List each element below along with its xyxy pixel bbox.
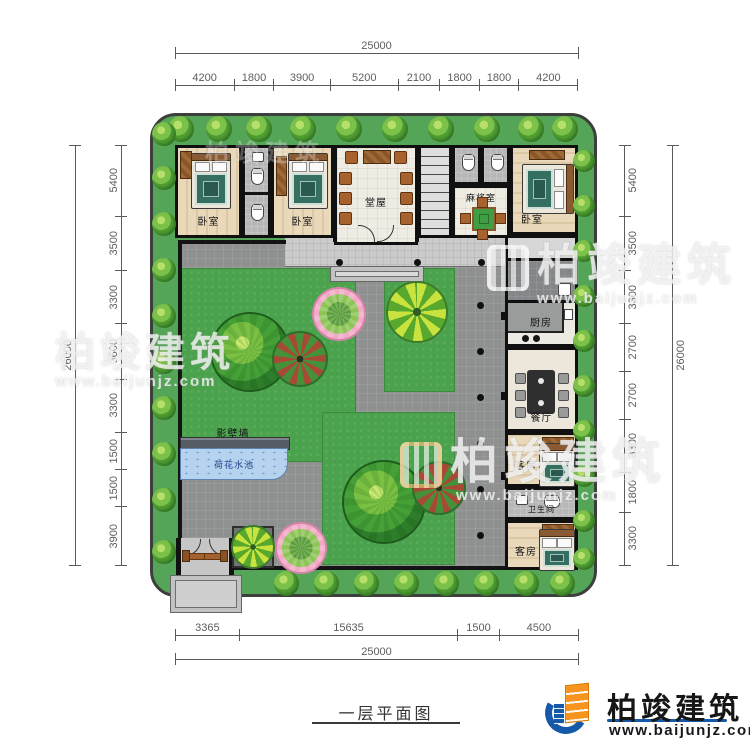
room-guest-2: 客房 xyxy=(505,520,578,570)
dimension-value: 3300 xyxy=(108,393,120,417)
dimension-segment: 1800 xyxy=(479,70,518,86)
bush-icon xyxy=(573,510,595,532)
stove-icon xyxy=(533,335,540,342)
bush-icon xyxy=(152,304,176,328)
room-label-kitchen: 厨房 xyxy=(530,314,552,329)
dimension-value: 25000 xyxy=(361,646,392,658)
dimension-left-total: 26000 xyxy=(60,145,76,565)
courtyard-wall-bottom xyxy=(234,566,507,570)
dimension-right-total: 26000 xyxy=(672,145,688,565)
toilet-icon xyxy=(491,154,504,171)
bed xyxy=(288,153,328,209)
bush-icon xyxy=(152,442,176,466)
washer-icon xyxy=(558,283,571,296)
column-marker xyxy=(414,259,421,266)
column-marker xyxy=(477,486,484,493)
bush-icon xyxy=(206,116,232,142)
palm-tree-icon xyxy=(231,525,275,569)
bush-icon xyxy=(573,465,595,487)
dimension-value: 26000 xyxy=(62,340,74,371)
dimension-value: 1800 xyxy=(242,72,266,84)
tree-icon xyxy=(342,460,426,544)
bush-icon xyxy=(152,258,176,282)
room-guest-1: 客房 xyxy=(505,432,578,487)
dimension-value: 15635 xyxy=(333,622,364,634)
dimension-segment: 25000 xyxy=(175,644,578,660)
company-logo: 柏竣建筑 www.baijunjz.com xyxy=(545,682,750,742)
bush-icon xyxy=(573,150,595,172)
dimension-segment: 5400 xyxy=(624,145,640,216)
room-label-bedroom-1: 卧室 xyxy=(178,213,239,228)
bush-icon xyxy=(552,116,578,142)
dimension-value: 3300 xyxy=(108,285,120,309)
bush-icon xyxy=(514,571,539,596)
dimension-segment: 3300 xyxy=(624,271,640,324)
room-label-guest-2: 客房 xyxy=(515,543,537,558)
bush-icon xyxy=(573,240,595,262)
bush-icon xyxy=(152,350,176,374)
chair xyxy=(558,373,569,384)
dimension-value: 3600 xyxy=(108,339,120,363)
entrance-gate xyxy=(176,538,234,575)
floor-plan-canvas: 25000 42001800390052002100180018004200 3… xyxy=(0,0,750,750)
dimension-segment: 1500 xyxy=(106,470,122,507)
chair xyxy=(460,213,471,224)
room-dining: 餐厅 xyxy=(505,347,578,432)
bush-icon xyxy=(394,571,419,596)
dimension-bottom-segments: 33651563515004500 xyxy=(175,620,578,636)
dimension-right-segments: 54003500330027002700330018003300 xyxy=(624,145,640,565)
courtyard-wall-left xyxy=(178,240,182,570)
dining-table xyxy=(527,370,555,414)
chair xyxy=(345,151,358,164)
column-marker xyxy=(477,348,484,355)
dimension-value: 1800 xyxy=(487,72,511,84)
bush-icon xyxy=(354,571,379,596)
dimension-value: 4200 xyxy=(192,72,216,84)
dimension-value: 3300 xyxy=(627,285,639,309)
room-label-bathroom: 卫生间 xyxy=(508,504,575,515)
dimension-value: 2100 xyxy=(407,72,431,84)
dimension-segment: 3500 xyxy=(624,216,640,271)
wardrobe xyxy=(529,150,565,160)
dimension-value: 3500 xyxy=(108,231,120,255)
bush-icon xyxy=(474,571,499,596)
chair xyxy=(558,390,569,401)
bed xyxy=(539,443,575,487)
bush-icon xyxy=(152,488,176,512)
bush-icon xyxy=(434,571,459,596)
bush-icon xyxy=(573,420,595,442)
dimension-value: 5400 xyxy=(627,168,639,192)
dimension-segment: 3300 xyxy=(106,271,122,324)
room-label-hall: 堂屋 xyxy=(337,194,415,209)
dimension-bottom-total: 25000 xyxy=(175,644,578,660)
column-marker xyxy=(336,259,343,266)
dimension-segment: 1800 xyxy=(624,472,640,512)
dimension-segment: 2100 xyxy=(398,70,440,86)
room-mahjong: 麻将室 xyxy=(452,185,510,238)
dimension-segment: 2700 xyxy=(624,324,640,372)
room-label-guest-1: 客房 xyxy=(515,457,537,472)
dimension-segment: 26000 xyxy=(672,145,688,565)
column-marker xyxy=(477,302,484,309)
dimension-value: 2700 xyxy=(627,383,639,407)
chair xyxy=(400,212,413,225)
column-marker xyxy=(477,532,484,539)
dimension-value: 5200 xyxy=(352,72,376,84)
bed xyxy=(539,529,575,571)
dimension-segment: 3900 xyxy=(106,507,122,565)
sink-icon xyxy=(252,152,264,162)
room-bedroom-2: 卧室 xyxy=(271,145,334,238)
column-marker xyxy=(477,440,484,447)
room-bath-strip xyxy=(242,145,271,238)
sink-icon xyxy=(564,309,573,320)
dimension-segment: 3300 xyxy=(106,379,122,432)
dimension-value: 2700 xyxy=(627,335,639,359)
tree-icon xyxy=(412,461,466,515)
dimension-value: 3300 xyxy=(627,526,639,550)
dimension-segment: 3600 xyxy=(106,324,122,380)
bush-icon xyxy=(518,116,544,142)
dimension-segment: 4500 xyxy=(500,620,578,636)
bush-icon xyxy=(550,571,575,596)
flowering-tree-icon xyxy=(312,287,366,341)
dimension-segment: 1800 xyxy=(440,70,479,86)
chair xyxy=(515,373,526,384)
dimension-value: 5400 xyxy=(108,168,120,192)
bush-icon xyxy=(428,116,454,142)
dimension-value: 3500 xyxy=(627,231,639,255)
toilet-icon xyxy=(251,168,264,185)
bush-icon xyxy=(152,122,176,146)
bush-icon xyxy=(474,116,500,142)
room-bedroom-1: 卧室 xyxy=(175,145,242,238)
dimension-segment: 3300 xyxy=(624,512,640,565)
stove-icon xyxy=(522,335,529,342)
toilet-icon xyxy=(462,154,475,171)
wardrobe xyxy=(276,156,287,196)
dimension-value: 25000 xyxy=(361,40,392,52)
bush-icon xyxy=(336,116,362,142)
dimension-value: 1500 xyxy=(108,439,120,463)
dimension-left-segments: 54003500330036003300150015003900 xyxy=(106,145,122,565)
bush-icon xyxy=(314,571,339,596)
company-logo-icon xyxy=(545,682,601,740)
dimension-top-total: 25000 xyxy=(175,38,578,54)
staircase xyxy=(418,145,452,238)
bush-icon xyxy=(573,195,595,217)
bush-icon xyxy=(152,396,176,420)
room-utility xyxy=(505,258,578,303)
dimension-segment: 1500 xyxy=(457,620,499,636)
company-url: www.baijunjz.com xyxy=(609,722,750,739)
mahjong-table xyxy=(472,207,496,231)
bush-icon xyxy=(382,116,408,142)
tree-icon xyxy=(272,331,328,387)
dimension-value: 3900 xyxy=(290,72,314,84)
bush-icon xyxy=(573,285,595,307)
dimension-segment: 2700 xyxy=(624,371,640,419)
bush-icon xyxy=(152,166,176,190)
bush-icon xyxy=(573,330,595,352)
lotus-pool: 荷花水池 xyxy=(180,448,288,480)
bed xyxy=(522,164,574,214)
gate-post xyxy=(182,550,190,562)
dimension-value: 3900 xyxy=(108,524,120,548)
dimension-segment: 1500 xyxy=(106,432,122,469)
room-bedroom-3: 卧室 xyxy=(510,145,578,235)
dimension-value: 3300 xyxy=(627,433,639,457)
sheet-title: 一层平面图 xyxy=(312,700,460,724)
bush-icon xyxy=(152,212,176,236)
dimension-segment: 3500 xyxy=(106,216,122,271)
bush-icon xyxy=(246,116,272,142)
room-label-bedroom-2: 卧室 xyxy=(274,213,331,228)
gate-steps xyxy=(170,575,242,613)
dimension-value: 4500 xyxy=(527,622,551,634)
dimension-segment: 5200 xyxy=(330,70,398,86)
dimension-value: 1800 xyxy=(447,72,471,84)
chair xyxy=(394,151,407,164)
room-label-dining: 餐厅 xyxy=(508,409,575,424)
dimension-segment: 25000 xyxy=(175,38,578,54)
courtyard-wall-front xyxy=(178,240,286,244)
dimension-segment: 3365 xyxy=(175,620,240,636)
dimension-segment: 3300 xyxy=(624,419,640,472)
bush-icon xyxy=(274,571,299,596)
dimension-value: 1500 xyxy=(108,476,120,500)
chair xyxy=(477,229,488,240)
dimension-value: 3365 xyxy=(195,622,219,634)
chair xyxy=(477,197,488,208)
dimension-value: 1800 xyxy=(627,480,639,504)
dimension-top-segments: 42001800390052002100180018004200 xyxy=(175,70,578,86)
sheet-title-underline xyxy=(312,722,460,724)
gate-post xyxy=(220,550,228,562)
bush-icon xyxy=(290,116,316,142)
chair xyxy=(339,212,352,225)
door-arc xyxy=(377,225,394,242)
bed xyxy=(191,153,231,209)
flowering-tree-icon xyxy=(275,522,327,574)
chair xyxy=(339,172,352,185)
dimension-value: 26000 xyxy=(675,340,687,371)
column-marker xyxy=(477,394,484,401)
dimension-value: 4200 xyxy=(536,72,560,84)
room-label-bedroom-3: 卧室 xyxy=(521,211,543,226)
room-bathroom: 卫生间 xyxy=(505,487,578,520)
room-bath-a xyxy=(452,145,481,185)
dimension-segment: 5400 xyxy=(106,145,122,216)
dimension-segment: 1800 xyxy=(234,70,273,86)
dimension-segment: 15635 xyxy=(240,620,458,636)
dimension-segment: 4200 xyxy=(175,70,234,86)
room-kitchen: 厨房 xyxy=(505,300,578,347)
bush-icon xyxy=(573,375,595,397)
door-arc xyxy=(358,225,375,242)
hall-entry-steps xyxy=(330,266,424,282)
dimension-segment: 3900 xyxy=(274,70,331,86)
palm-tree-icon xyxy=(386,281,448,343)
room-hall: 堂屋 xyxy=(334,145,418,245)
column-marker xyxy=(478,259,485,266)
pool-label: 荷花水池 xyxy=(214,458,254,471)
chair xyxy=(400,172,413,185)
chair xyxy=(515,390,526,401)
toilet-icon xyxy=(251,204,264,221)
room-bath-b xyxy=(481,145,510,185)
dimension-value: 1500 xyxy=(466,622,490,634)
dimension-segment: 26000 xyxy=(60,145,76,565)
bush-icon xyxy=(573,548,595,570)
dimension-segment: 4200 xyxy=(519,70,578,86)
chair xyxy=(495,213,506,224)
bush-icon xyxy=(152,540,176,564)
